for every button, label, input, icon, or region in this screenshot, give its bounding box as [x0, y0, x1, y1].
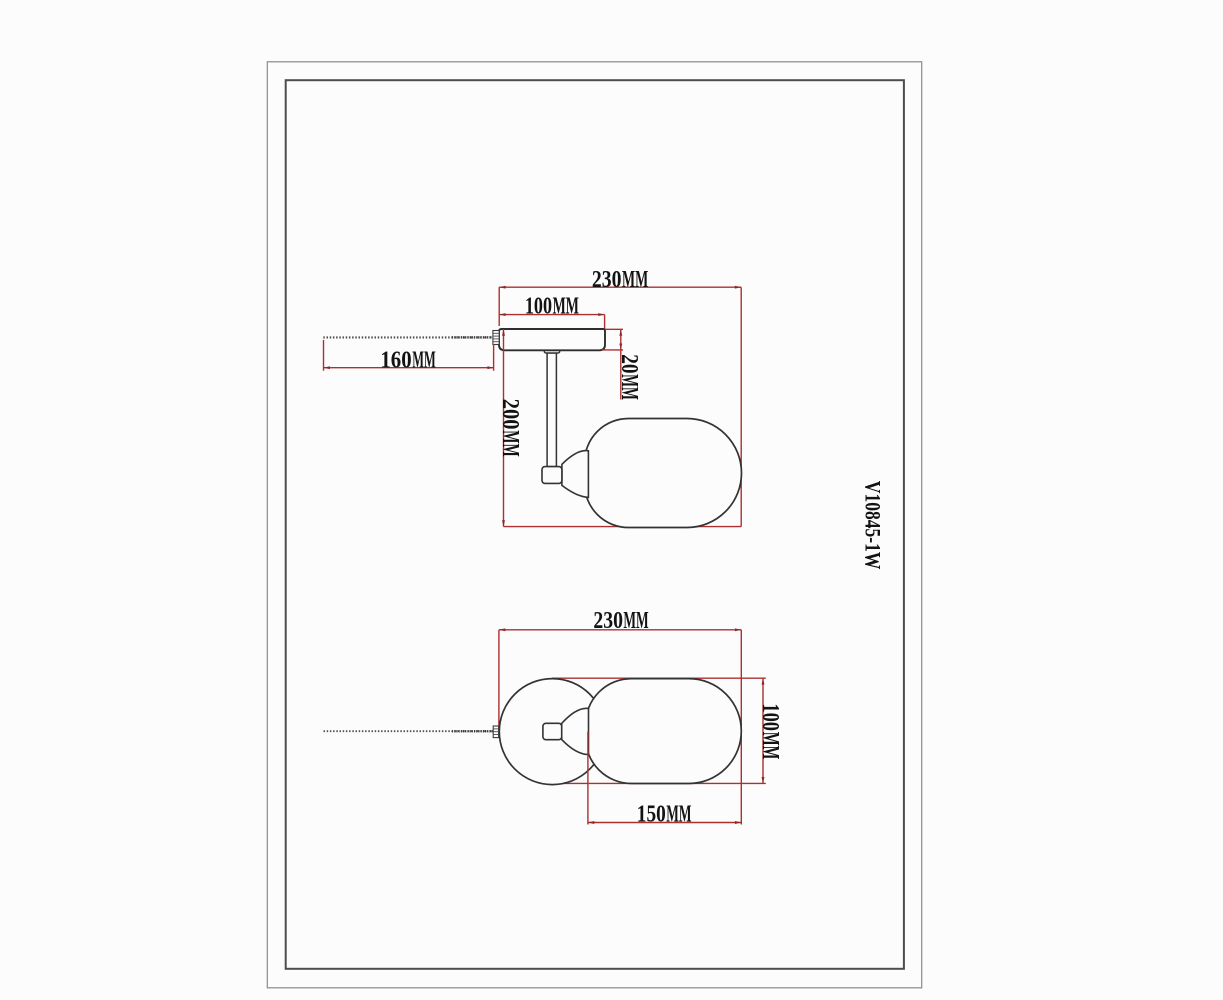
- svg-text:MM: MM: [553, 293, 579, 319]
- svg-text:MM: MM: [622, 267, 648, 293]
- svg-text:V10845-1W: V10845-1W: [860, 481, 885, 570]
- svg-text:MM: MM: [616, 374, 642, 400]
- svg-text:160: 160: [380, 347, 411, 373]
- svg-text:MM: MM: [666, 801, 691, 827]
- svg-text:MM: MM: [412, 347, 436, 373]
- svg-text:200: 200: [497, 399, 523, 430]
- svg-text:150: 150: [637, 801, 666, 827]
- svg-text:100: 100: [757, 703, 783, 731]
- svg-text:MM: MM: [623, 608, 648, 634]
- svg-text:MM: MM: [757, 732, 783, 760]
- svg-text:230: 230: [592, 267, 622, 293]
- svg-text:MM: MM: [497, 430, 523, 457]
- svg-text:20: 20: [616, 354, 642, 373]
- svg-text:100: 100: [525, 293, 552, 319]
- svg-text:230: 230: [593, 608, 623, 634]
